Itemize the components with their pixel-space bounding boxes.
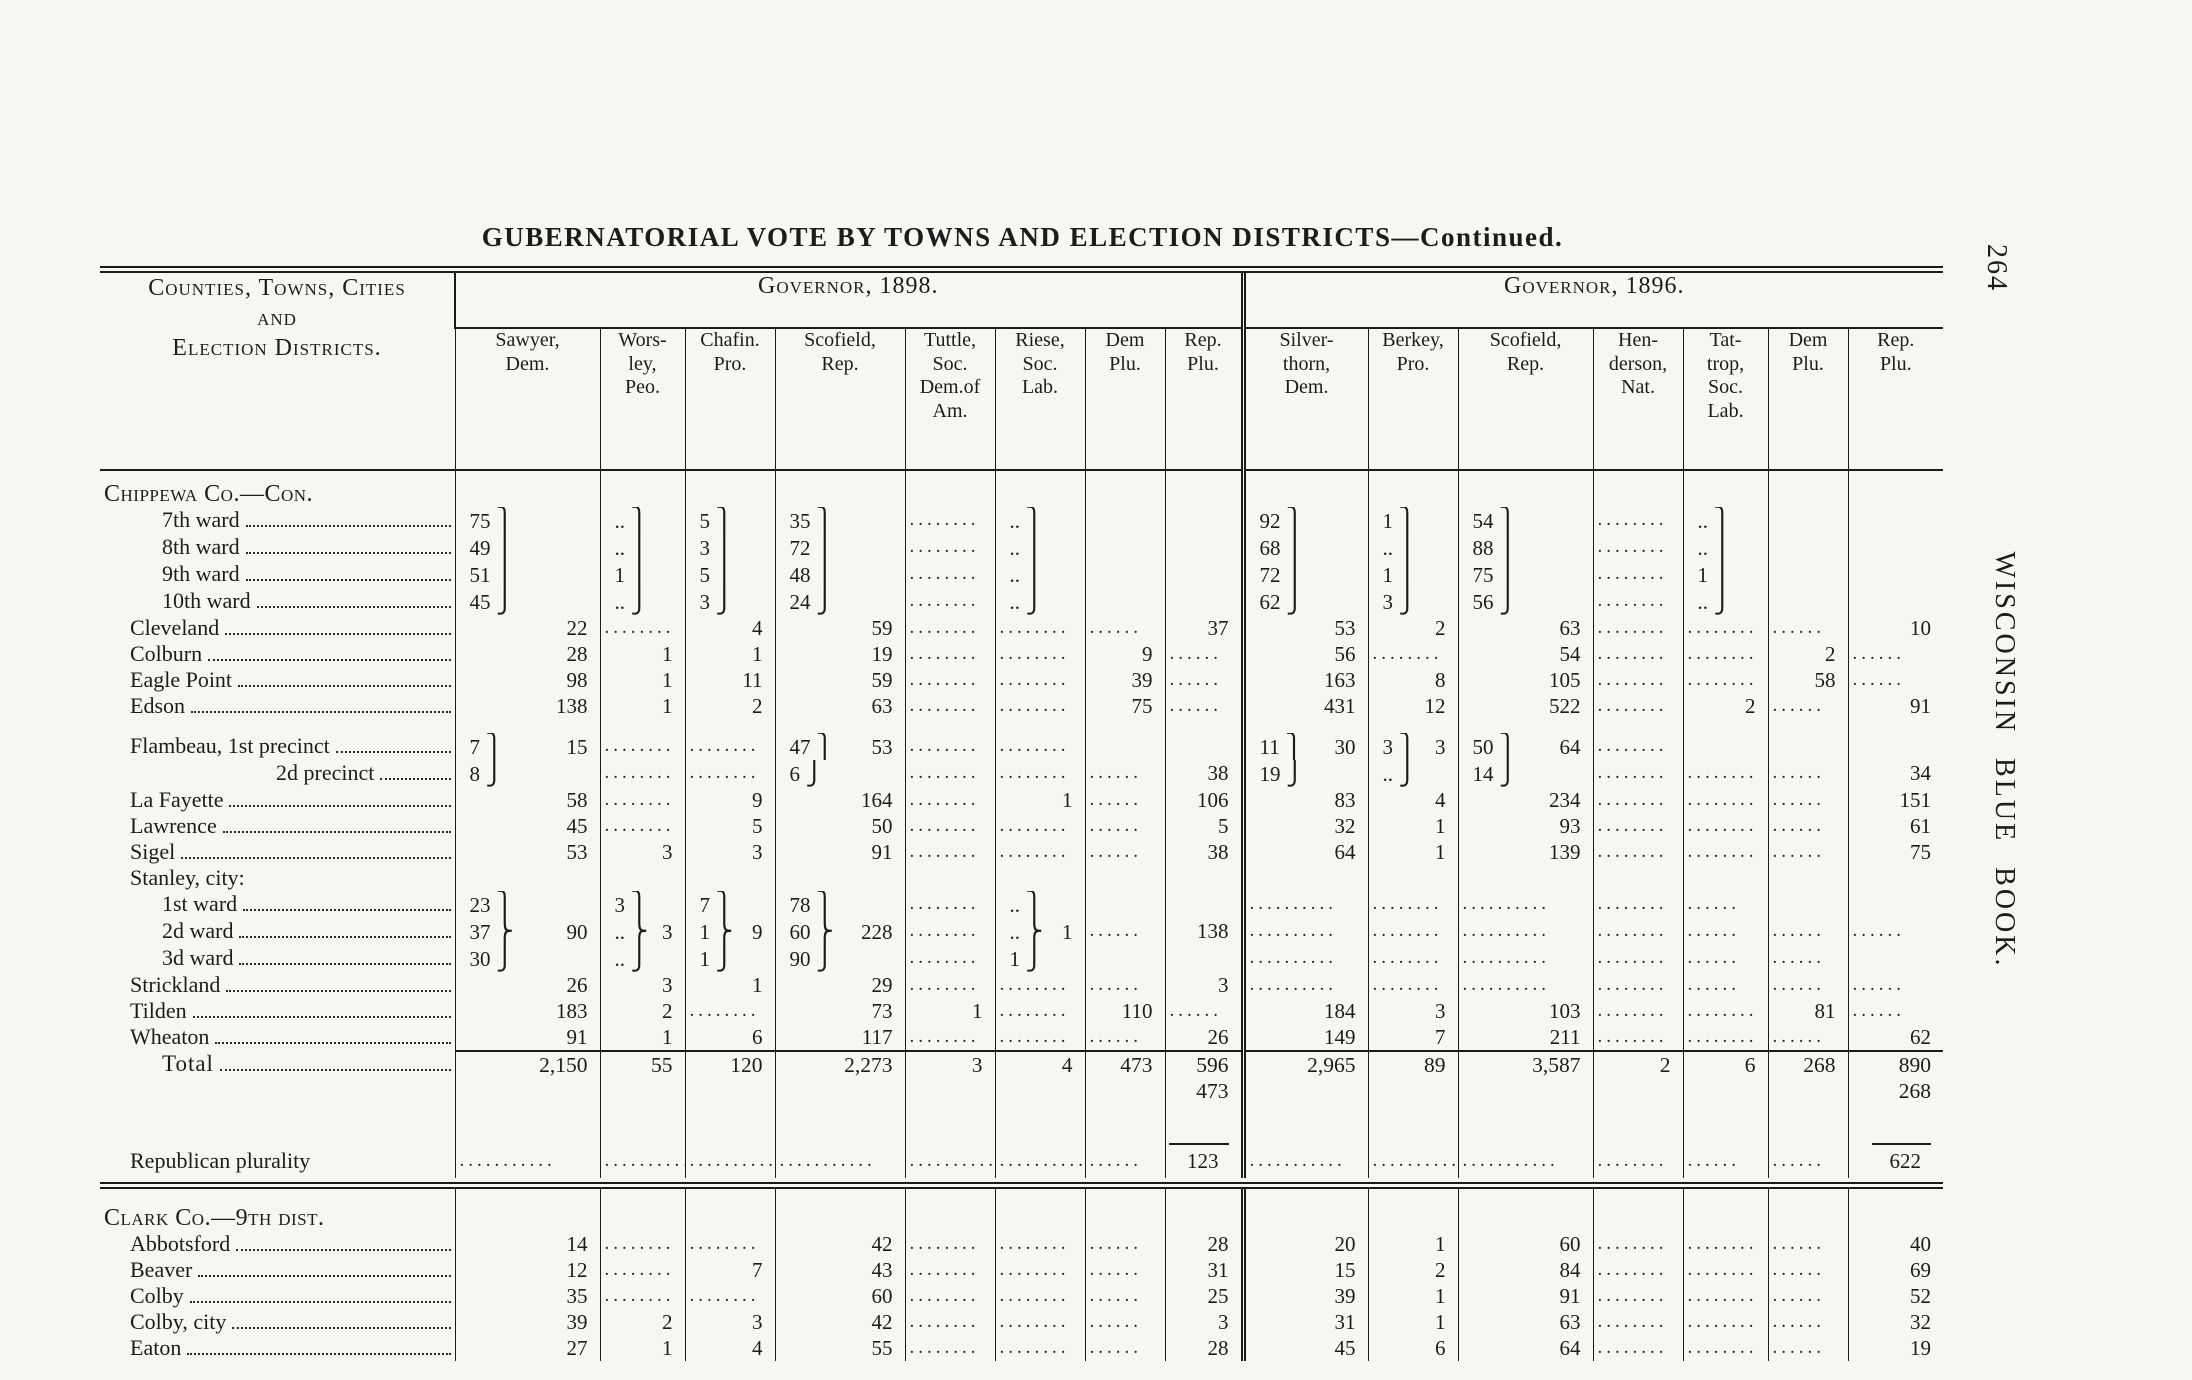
- vote-cell: ........: [995, 641, 1085, 667]
- cell-value: 268: [1803, 1052, 1847, 1078]
- row-label: Tilden: [130, 998, 187, 1024]
- dots-fill: ...........: [456, 1148, 560, 1174]
- dots-fill: ........: [906, 1257, 984, 1283]
- vote-cell: 12: [1368, 693, 1458, 719]
- dots-fill: ...........: [1246, 1148, 1350, 1174]
- brace-glyph: ⎪: [1499, 534, 1517, 561]
- vote-cell: ......: [1848, 998, 1943, 1024]
- spacer-cell: [1683, 470, 1768, 481]
- bracket-value: 1 ⎪: [1369, 561, 1417, 588]
- cell-value: 42: [872, 1309, 905, 1335]
- vote-cell: ......: [1768, 1024, 1848, 1051]
- dots-fill: ........: [686, 1283, 764, 1309]
- bracket-value: 88 ⎪: [1459, 534, 1517, 561]
- row-label: Colby, city: [130, 1309, 226, 1335]
- vote-cell: 30 ⎭: [455, 945, 600, 972]
- spacer-row: [100, 470, 1943, 481]
- vote-cell: .. ⎪: [600, 534, 685, 561]
- vote-cell: 68 ⎪: [1243, 534, 1368, 561]
- brace-glyph: ⎫: [1285, 733, 1303, 760]
- spacer-cell: [455, 1186, 600, 1206]
- vote-cell: 163: [1243, 667, 1368, 693]
- vote-cell: 50 ⎫64: [1458, 733, 1593, 760]
- dots-fill: ........: [996, 972, 1074, 998]
- dot-leader: [246, 552, 451, 554]
- cell-value: 55: [872, 1335, 905, 1361]
- vote-cell: ........: [600, 1283, 685, 1309]
- vote-cell: 49 ⎪: [455, 534, 600, 561]
- brace-glyph: ⎫: [1713, 507, 1731, 534]
- dots-fill: ......: [1086, 1231, 1147, 1257]
- dot-leader: [191, 711, 451, 713]
- vote-cell: 54 ⎫: [1458, 507, 1593, 534]
- cell-value: 35: [567, 1283, 600, 1309]
- vote-cell: 56: [1243, 641, 1368, 667]
- bracket-value: 47 ⎫: [776, 733, 834, 760]
- vote-cell: 37 ⎬90: [455, 918, 600, 945]
- vote-cell: [1768, 507, 1848, 534]
- vote-cell: 1 ⎪: [1368, 561, 1458, 588]
- bracket-value: .. ⎫: [996, 507, 1044, 534]
- row-label-cell: Colby, city: [100, 1309, 455, 1335]
- cell-value: 28: [567, 641, 600, 667]
- vote-cell: ........: [1683, 1231, 1768, 1257]
- vote-cell: 211: [1458, 1024, 1593, 1051]
- dots-fill: ......: [1086, 1283, 1147, 1309]
- vote-cell: ........: [1683, 1283, 1768, 1309]
- dot-leader: [190, 1301, 451, 1303]
- dots-fill: ......: [1769, 1024, 1830, 1050]
- dot-leader: [238, 685, 450, 687]
- vote-cell: 75: [1848, 839, 1943, 865]
- cell-value: 60: [872, 1283, 905, 1309]
- cell-value: 25: [1208, 1283, 1241, 1309]
- vote-cell: ........: [995, 667, 1085, 693]
- vote-cell: ........: [1593, 561, 1683, 588]
- bracket-value: 3 ⎭: [1369, 588, 1417, 615]
- cell-value: 149: [1324, 1024, 1368, 1050]
- group-header-1896: Governor, 1896.: [1243, 270, 1943, 329]
- table-row: 2d ward37 ⎬90.. ⎬31 ⎬960 ⎬228.......... …: [100, 918, 1943, 945]
- cell-value: 40: [1910, 1231, 1943, 1257]
- spacer-cell: [995, 1186, 1085, 1206]
- vote-cell: 234: [1458, 787, 1593, 813]
- vote-cell: [1768, 481, 1848, 507]
- vote-cell: 75: [1085, 693, 1165, 719]
- row-label-cell: 2d ward: [100, 918, 455, 945]
- cell-value: 53: [1335, 615, 1368, 641]
- cell-value: 596 473: [1196, 1052, 1240, 1104]
- vote-cell: 60: [775, 1283, 905, 1309]
- vote-cell: ........: [1593, 787, 1683, 813]
- spacer-cell: [1593, 1186, 1683, 1206]
- cell-value: 69: [1910, 1257, 1943, 1283]
- dots-fill: ......: [1684, 918, 1745, 944]
- bracket-value: 1 ⎭: [996, 945, 1044, 972]
- dots-fill: ........: [1684, 998, 1762, 1024]
- cell-value: 106: [1197, 787, 1241, 813]
- dots-fill: ........: [906, 733, 984, 759]
- dots-fill: ......: [1769, 1257, 1830, 1283]
- vote-cell: 7 ⎫15: [455, 733, 600, 760]
- table-row: Strickland263129......................3.…: [100, 972, 1943, 998]
- vote-cell: .. ⎭: [1368, 760, 1458, 787]
- vote-cell: ........: [1683, 760, 1768, 787]
- dots-fill: ........: [906, 918, 984, 944]
- vote-cell: ......: [1165, 693, 1243, 719]
- brace-glyph: ⎬: [715, 918, 733, 945]
- vote-cell: 25: [1165, 1283, 1243, 1309]
- bracket-value: .. ⎭: [1369, 760, 1417, 787]
- vote-cell: ......: [1085, 1024, 1165, 1051]
- vote-cell: [995, 481, 1085, 507]
- dots-fill: ........: [1594, 1024, 1672, 1050]
- bracket-value: 92 ⎫: [1246, 507, 1304, 534]
- cell-value: 228: [861, 919, 905, 945]
- vote-cell: [1683, 481, 1768, 507]
- dot-leader: [208, 659, 450, 661]
- cell-value: 211: [1550, 1024, 1593, 1050]
- vote-cell: ..........: [995, 1112, 1085, 1178]
- vote-cell: ........: [1593, 891, 1683, 918]
- brace-glyph: ⎫: [715, 891, 733, 918]
- vote-cell: 19: [775, 641, 905, 667]
- vote-cell: ........: [995, 972, 1085, 998]
- spacer-cell: [685, 470, 775, 481]
- vote-cell: ......: [1683, 945, 1768, 972]
- spacer-cell: [1085, 1186, 1165, 1206]
- dots-fill: ......: [1166, 693, 1227, 719]
- row-label: Total: [162, 1051, 214, 1077]
- col-header-silverthorn: Silver- thorn, Dem.: [1243, 328, 1368, 470]
- brace-glyph: ⎫: [1025, 891, 1043, 918]
- vote-cell: ......: [1165, 667, 1243, 693]
- vote-cell: 1 ⎪: [600, 561, 685, 588]
- vote-cell: 75 ⎫: [455, 507, 600, 534]
- spacer-cell: [685, 719, 775, 733]
- brace-glyph: ⎭: [1398, 760, 1416, 787]
- cell-value: 9: [752, 787, 775, 813]
- row-label: Colburn: [130, 641, 202, 667]
- spacer-cell: [1368, 1186, 1458, 1206]
- bracket-value: .. ⎫: [1684, 507, 1732, 534]
- vote-cell: ........: [905, 1257, 995, 1283]
- vote-cell: [600, 1205, 685, 1231]
- vote-cell: 58: [1768, 667, 1848, 693]
- row-label-cell: Abbotsford: [100, 1231, 455, 1257]
- dots-fill: ........: [996, 693, 1074, 719]
- vote-cell: 1: [685, 972, 775, 998]
- brace-glyph: ⎫: [1499, 507, 1517, 534]
- spacer-cell: [1593, 719, 1683, 733]
- vote-cell: ........: [995, 1231, 1085, 1257]
- vote-cell: 2,150: [455, 1051, 600, 1112]
- vote-cell: 42: [775, 1231, 905, 1257]
- vote-cell: 4: [685, 1335, 775, 1361]
- page-title: GUBERNATORIAL VOTE BY TOWNS AND ELECTION…: [100, 222, 1945, 253]
- vote-cell: 2,965: [1243, 1051, 1368, 1112]
- dots-fill: ........: [1594, 667, 1672, 693]
- vote-cell: ........: [600, 787, 685, 813]
- cell-value: 2: [1435, 615, 1458, 641]
- dots-fill: ........: [906, 1335, 984, 1361]
- vote-cell: [1683, 733, 1768, 760]
- dots-fill: ......: [1769, 1309, 1830, 1335]
- vote-cell: ........: [1593, 813, 1683, 839]
- vote-cell: 138: [1165, 918, 1243, 945]
- dots-fill: ..........: [1246, 918, 1342, 944]
- vote-cell: ........: [905, 813, 995, 839]
- dots-fill: ...........: [1459, 1148, 1563, 1174]
- cell-value: 58: [567, 787, 600, 813]
- brace-glyph: ⎪: [1025, 534, 1043, 561]
- dots-fill: ......: [1849, 918, 1910, 944]
- col-header-dem-plu-98: Dem Plu.: [1085, 328, 1165, 470]
- brace-glyph: ⎫: [816, 507, 834, 534]
- vote-cell: 81: [1768, 998, 1848, 1024]
- cell-value: 163: [1324, 667, 1368, 693]
- brace-glyph: ⎫: [816, 891, 834, 918]
- cell-value: 3: [662, 919, 685, 945]
- cell-value: 110: [1122, 998, 1165, 1024]
- vote-cell: 1: [600, 1335, 685, 1361]
- cell-value: 29: [872, 972, 905, 998]
- row-label-cell: Eagle Point: [100, 667, 455, 693]
- vote-cell: ........: [1683, 998, 1768, 1024]
- vote-cell: ........: [1593, 507, 1683, 534]
- vote-cell: ......: [1085, 760, 1165, 787]
- vote-cell: [1243, 481, 1368, 507]
- cell-value: 1: [662, 693, 685, 719]
- dots-fill: ......: [1769, 760, 1830, 786]
- cell-value: 103: [1549, 998, 1593, 1024]
- vote-cell: ......: [1683, 972, 1768, 998]
- cell-value: 1: [1435, 1309, 1458, 1335]
- brace-glyph: ⎭: [485, 760, 503, 787]
- table-row: La Fayette58........9164........1......1…: [100, 787, 1943, 813]
- row-label-cell: 9th ward: [100, 561, 455, 588]
- vote-cell: 42: [775, 1309, 905, 1335]
- plurality-value: 622: [1872, 1143, 1932, 1174]
- vote-cell: [1165, 588, 1243, 615]
- cell-value: 123: [1169, 1143, 1241, 1174]
- vote-cell: 88 ⎪: [1458, 534, 1593, 561]
- row-label-cell: Eaton: [100, 1335, 455, 1361]
- dots-fill: ........: [1684, 1283, 1762, 1309]
- bracket-value: .. ⎪: [1684, 534, 1732, 561]
- cell-value: 2: [662, 1309, 685, 1335]
- brace-glyph: ⎭: [805, 760, 823, 787]
- section-row: Clark Co.—9th dist.: [100, 1205, 1943, 1231]
- vote-cell: ........: [1593, 1257, 1683, 1283]
- vote-cell: 93: [1458, 813, 1593, 839]
- vote-cell: 40: [1848, 1231, 1943, 1257]
- brace-glyph: ⎪: [715, 534, 733, 561]
- dots-fill: ........: [1684, 760, 1762, 786]
- dots-fill: ..........: [1459, 918, 1555, 944]
- vote-cell: 1: [600, 693, 685, 719]
- brace-glyph: ⎪: [1713, 534, 1731, 561]
- dots-fill: ........: [1369, 918, 1447, 944]
- cell-value: 63: [1560, 615, 1593, 641]
- row-label-cell: Colburn: [100, 641, 455, 667]
- dots-fill: ......: [1166, 998, 1227, 1024]
- cell-value: 75: [1132, 693, 1165, 719]
- vote-cell: 183: [455, 998, 600, 1024]
- vote-cell: 26: [455, 972, 600, 998]
- dots-fill: ........: [906, 693, 984, 719]
- brace-glyph: ⎬: [630, 918, 648, 945]
- cell-value: 83: [1335, 787, 1368, 813]
- dots-fill: ........: [1594, 1309, 1672, 1335]
- table-row: Edson1381263................75......4311…: [100, 693, 1943, 719]
- vote-cell: 164: [775, 787, 905, 813]
- vote-cell: [1165, 945, 1243, 972]
- bracket-value: .. ⎭: [601, 945, 649, 972]
- vote-cell: ........: [1683, 1335, 1768, 1361]
- cell-value: 53: [872, 734, 905, 760]
- brace-glyph: ⎪: [1713, 561, 1731, 588]
- vote-cell: ..........: [1458, 972, 1593, 998]
- brace-glyph: ⎬: [1025, 918, 1043, 945]
- bracket-value: 78 ⎫: [776, 891, 834, 918]
- vote-cell: 1: [1368, 1283, 1458, 1309]
- row-label-cell: Lawrence: [100, 813, 455, 839]
- cell-value: 6: [1745, 1052, 1768, 1078]
- bracket-value: 45 ⎭: [456, 588, 514, 615]
- vote-cell: 5: [685, 813, 775, 839]
- dots-fill: ........: [906, 1309, 984, 1335]
- vote-cell: 39: [455, 1309, 600, 1335]
- spacer-cell: [1768, 470, 1848, 481]
- dots-fill: ........: [601, 1231, 679, 1257]
- vote-cell: 72 ⎪: [1243, 561, 1368, 588]
- vote-cell: ..........: [1243, 891, 1368, 918]
- dot-leader: [246, 579, 451, 581]
- vote-cell: ......: [1683, 1112, 1768, 1178]
- vote-cell: 55: [775, 1335, 905, 1361]
- vote-cell: ......: [1085, 839, 1165, 865]
- cell-value: 1: [662, 1024, 685, 1050]
- cell-value: 81: [1815, 998, 1848, 1024]
- vote-cell: 60 ⎬228: [775, 918, 905, 945]
- vote-cell: ........: [995, 693, 1085, 719]
- cell-value: 27: [567, 1335, 600, 1361]
- vote-cell: [1368, 1205, 1458, 1231]
- vote-cell: [455, 865, 600, 891]
- bracket-value: 8 ⎭: [456, 760, 504, 787]
- vote-cell: 32: [1243, 813, 1368, 839]
- vote-cell: 184: [1243, 998, 1368, 1024]
- vote-cell: ........: [905, 588, 995, 615]
- vote-cell: ........: [1683, 1257, 1768, 1283]
- spacer-cell: [775, 470, 905, 481]
- vote-cell: ........: [1593, 1024, 1683, 1051]
- cell-value: 31: [1208, 1257, 1241, 1283]
- vote-cell: 75 ⎪: [1458, 561, 1593, 588]
- vote-cell: [1085, 561, 1165, 588]
- scanned-book-page: { "page": { "number": "264", "side_label…: [0, 0, 2192, 1380]
- dots-fill: ......: [1086, 1148, 1147, 1174]
- cell-value: 12: [567, 1257, 600, 1283]
- spacer-cell: [995, 719, 1085, 733]
- dots-fill: ........: [996, 998, 1074, 1024]
- vote-cell: 3 ⎫3: [1368, 733, 1458, 760]
- table-row: Colburn281119................9......56..…: [100, 641, 1943, 667]
- cell-value: 7: [752, 1257, 775, 1283]
- row-label-cell: Colby: [100, 1283, 455, 1309]
- cell-value: 184: [1324, 998, 1368, 1024]
- vote-cell: 63: [1458, 1309, 1593, 1335]
- vote-cell: ........: [905, 760, 995, 787]
- vote-cell: ........: [1683, 1024, 1768, 1051]
- dots-fill: ........: [601, 615, 679, 641]
- vote-cell: 2: [600, 1309, 685, 1335]
- cell-value: 3: [752, 1309, 775, 1335]
- vote-cell: ..........: [685, 1112, 775, 1178]
- dots-fill: ..........: [1246, 972, 1342, 998]
- vote-cell: 84: [1458, 1257, 1593, 1283]
- vote-cell: .. ⎬1: [995, 918, 1085, 945]
- bracket-value: .. ⎭: [996, 588, 1044, 615]
- bracket-value: 3 ⎪: [686, 534, 734, 561]
- vote-cell: ........: [1593, 998, 1683, 1024]
- vote-cell: ......: [1085, 918, 1165, 945]
- vote-cell: [1768, 865, 1848, 891]
- brace-glyph: ⎪: [496, 534, 514, 561]
- vote-cell: ........: [1368, 972, 1458, 998]
- vote-cell: ........: [905, 561, 995, 588]
- bracket-value: 54 ⎫: [1459, 507, 1517, 534]
- dots-fill: ........: [601, 1257, 679, 1283]
- dots-fill: ........: [996, 733, 1074, 759]
- vote-cell: 106: [1165, 787, 1243, 813]
- book-edge-title: WISCONSIN BLUE BOOK.: [1988, 552, 2020, 969]
- bracket-value: 48 ⎪: [776, 561, 834, 588]
- dots-fill: ......: [1086, 813, 1147, 839]
- brace-glyph: ⎪: [630, 534, 648, 561]
- vote-cell: 91: [455, 1024, 600, 1051]
- brace-glyph: ⎪: [496, 561, 514, 588]
- vote-cell: 1 ⎪: [1683, 561, 1768, 588]
- vote-cell: 50: [775, 813, 905, 839]
- dots-fill: ........: [686, 733, 764, 759]
- vote-cell: 7: [1368, 1024, 1458, 1051]
- vote-cell: ........: [685, 733, 775, 760]
- vote-cell: 6: [685, 1024, 775, 1051]
- vote-cell: [775, 1205, 905, 1231]
- cell-value: 120: [730, 1052, 774, 1078]
- vote-cell: [455, 1205, 600, 1231]
- vote-cell: ......: [1768, 1231, 1848, 1257]
- vote-cell: 3 ⎫: [600, 891, 685, 918]
- vote-cell: 11: [685, 667, 775, 693]
- cell-value: 9: [1142, 641, 1165, 667]
- vote-cell: 1: [1368, 839, 1458, 865]
- vote-cell: ......: [1768, 839, 1848, 865]
- table-row: Colby, city392342......................3…: [100, 1309, 1943, 1335]
- vote-cell: 54: [1458, 641, 1593, 667]
- bracket-value: 72 ⎪: [776, 534, 834, 561]
- spacer-cell: [455, 470, 600, 481]
- dots-fill: ........: [1684, 1024, 1762, 1050]
- vote-cell: 45 ⎭: [455, 588, 600, 615]
- vote-cell: 28: [1165, 1335, 1243, 1361]
- vote-cell: 47 ⎫53: [775, 733, 905, 760]
- bracket-value: 1 ⎪: [601, 561, 649, 588]
- vote-cell: [600, 865, 685, 891]
- vote-cell: [685, 865, 775, 891]
